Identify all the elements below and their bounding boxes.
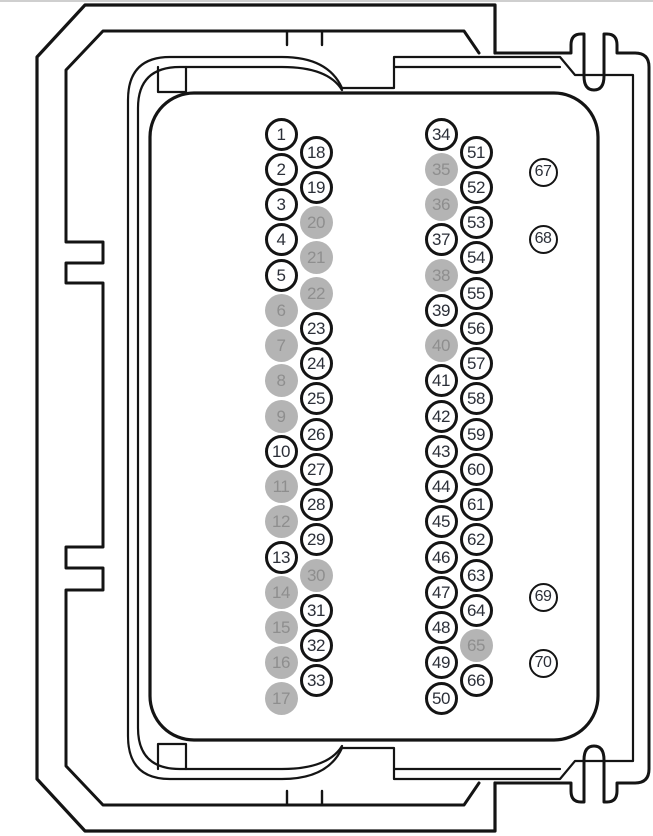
pin-number-label: 35 — [432, 161, 450, 178]
pin-number-label: 58 — [467, 390, 485, 407]
pin-number-label: 17 — [272, 690, 290, 707]
pin-number-label: 49 — [432, 654, 450, 671]
pin-number-label: 40 — [432, 337, 450, 354]
pin-number-label: 14 — [272, 584, 290, 601]
pin-70: 70 — [529, 649, 558, 678]
pin-34: 34 — [425, 118, 458, 151]
pin-48: 48 — [425, 611, 458, 644]
pin-66: 66 — [460, 664, 493, 697]
pin-number-label: 32 — [307, 637, 325, 654]
pin-10: 10 — [265, 435, 298, 468]
latch-notches — [158, 67, 186, 769]
pin-number-label: 42 — [432, 408, 450, 425]
pin-number-label: 23 — [307, 320, 325, 337]
connector-housing-outline — [0, 0, 653, 836]
pin-50: 50 — [425, 682, 458, 715]
pin-37: 37 — [425, 223, 458, 256]
pin-number-label: 10 — [272, 443, 290, 460]
pin-number-label: 46 — [432, 549, 450, 566]
pin-number-label: 47 — [432, 584, 450, 601]
pin-number-label: 48 — [432, 619, 450, 636]
pin-number-label: 26 — [307, 426, 325, 443]
pin-51: 51 — [460, 136, 493, 169]
pin-3: 3 — [265, 188, 298, 221]
pin-number-label: 4 — [277, 231, 286, 248]
pin-number-label: 20 — [307, 214, 325, 231]
pin-number-label: 57 — [467, 355, 485, 372]
pin-58: 58 — [460, 382, 493, 415]
pin-18: 18 — [300, 136, 333, 169]
pin-56: 56 — [460, 312, 493, 345]
pin-4: 4 — [265, 223, 298, 256]
pin-19: 19 — [300, 171, 333, 204]
pin-number-label: 27 — [307, 461, 325, 478]
pin-number-label: 52 — [467, 179, 485, 196]
pin-number-label: 44 — [432, 478, 450, 495]
pin-24: 24 — [300, 347, 333, 380]
pin-number-label: 21 — [307, 249, 325, 266]
pin-16: 16 — [265, 646, 298, 679]
pin-1: 1 — [265, 118, 298, 151]
pin-2: 2 — [265, 153, 298, 186]
pin-number-label: 69 — [535, 589, 552, 605]
pin-number-label: 65 — [467, 637, 485, 654]
pin-62: 62 — [460, 523, 493, 556]
pin-44: 44 — [425, 470, 458, 503]
pin-number-label: 62 — [467, 531, 485, 548]
pin-30: 30 — [300, 559, 333, 592]
pin-number-label: 8 — [277, 372, 286, 389]
pin-5: 5 — [265, 259, 298, 292]
pin-number-label: 31 — [307, 602, 325, 619]
pin-52: 52 — [460, 171, 493, 204]
pin-35: 35 — [425, 153, 458, 186]
pin-29: 29 — [300, 523, 333, 556]
pin-number-label: 28 — [307, 496, 325, 513]
pin-number-label: 55 — [467, 285, 485, 302]
pin-6: 6 — [265, 294, 298, 327]
pin-number-label: 30 — [307, 567, 325, 584]
pin-number-label: 3 — [277, 196, 286, 213]
pin-number-label: 11 — [273, 478, 290, 495]
pin-number-label: 12 — [272, 513, 290, 530]
pin-43: 43 — [425, 435, 458, 468]
pin-17: 17 — [265, 682, 298, 715]
pin-number-label: 63 — [467, 567, 485, 584]
pin-number-label: 9 — [277, 408, 286, 425]
pin-40: 40 — [425, 329, 458, 362]
pin-59: 59 — [460, 418, 493, 451]
pin-25: 25 — [300, 382, 333, 415]
pin-number-label: 60 — [467, 461, 485, 478]
pin-26: 26 — [300, 418, 333, 451]
pin-21: 21 — [300, 241, 333, 274]
outer-right-keyholes — [495, 34, 649, 802]
pin-number-label: 56 — [467, 320, 485, 337]
pin-number-label: 50 — [432, 690, 450, 707]
seal-groove-outer — [128, 57, 633, 779]
pin-number-label: 45 — [432, 513, 450, 530]
pin-number-label: 67 — [535, 164, 552, 180]
pin-20: 20 — [300, 206, 333, 239]
pin-number-label: 13 — [272, 549, 290, 566]
pin-38: 38 — [425, 259, 458, 292]
connector-diagram: 1234567891011121314151617181920212223242… — [0, 0, 653, 836]
pin-number-label: 5 — [277, 267, 286, 284]
pin-42: 42 — [425, 400, 458, 433]
pin-49: 49 — [425, 646, 458, 679]
pin-number-label: 66 — [467, 672, 485, 689]
pin-28: 28 — [300, 488, 333, 521]
pin-39: 39 — [425, 294, 458, 327]
pin-number-label: 51 — [467, 144, 485, 161]
pin-number-label: 16 — [272, 654, 290, 671]
pin-22: 22 — [300, 277, 333, 310]
pin-61: 61 — [460, 488, 493, 521]
pin-number-label: 43 — [432, 443, 450, 460]
pin-13: 13 — [265, 541, 298, 574]
pin-number-label: 41 — [432, 372, 450, 389]
pin-33: 33 — [300, 664, 333, 697]
pin-number-label: 38 — [432, 267, 450, 284]
pin-41: 41 — [425, 364, 458, 397]
pin-number-label: 59 — [467, 426, 485, 443]
pin-number-label: 64 — [467, 602, 485, 619]
pin-32: 32 — [300, 629, 333, 662]
pin-cavity — [150, 93, 598, 740]
pin-9: 9 — [265, 400, 298, 433]
pin-67: 67 — [529, 158, 558, 187]
pin-55: 55 — [460, 277, 493, 310]
pin-53: 53 — [460, 206, 493, 239]
pin-number-label: 54 — [467, 249, 485, 266]
pin-12: 12 — [265, 505, 298, 538]
pin-number-label: 39 — [432, 302, 450, 319]
pin-number-label: 29 — [307, 531, 325, 548]
pin-65: 65 — [460, 629, 493, 662]
pin-46: 46 — [425, 541, 458, 574]
pin-number-label: 2 — [277, 161, 286, 178]
pin-68: 68 — [529, 225, 558, 254]
pin-number-label: 15 — [272, 619, 290, 636]
pin-60: 60 — [460, 453, 493, 486]
pin-number-label: 24 — [307, 355, 325, 372]
pin-11: 11 — [265, 470, 298, 503]
pin-number-label: 36 — [432, 196, 450, 213]
pin-23: 23 — [300, 312, 333, 345]
pin-69: 69 — [529, 583, 558, 612]
pin-14: 14 — [265, 576, 298, 609]
pin-7: 7 — [265, 329, 298, 362]
pin-number-label: 53 — [467, 214, 485, 231]
pin-number-label: 68 — [535, 231, 552, 247]
pin-number-label: 70 — [535, 655, 552, 671]
pin-number-label: 25 — [307, 390, 325, 407]
pin-31: 31 — [300, 594, 333, 627]
pin-number-label: 33 — [307, 672, 325, 689]
pin-number-label: 19 — [307, 179, 325, 196]
pin-36: 36 — [425, 188, 458, 221]
pin-8: 8 — [265, 364, 298, 397]
pin-63: 63 — [460, 559, 493, 592]
pin-54: 54 — [460, 241, 493, 274]
pin-number-label: 6 — [277, 302, 286, 319]
pin-number-label: 61 — [467, 496, 485, 513]
pin-47: 47 — [425, 576, 458, 609]
pin-27: 27 — [300, 453, 333, 486]
pin-number-label: 1 — [277, 126, 286, 143]
pin-64: 64 — [460, 594, 493, 627]
pin-number-label: 18 — [307, 144, 325, 161]
pin-number-label: 34 — [432, 126, 450, 143]
pin-number-label: 37 — [432, 231, 450, 248]
pin-number-label: 7 — [277, 337, 286, 354]
pin-57: 57 — [460, 347, 493, 380]
pin-15: 15 — [265, 611, 298, 644]
pin-45: 45 — [425, 505, 458, 538]
pin-number-label: 22 — [307, 285, 325, 302]
seal-groove-inner — [138, 67, 560, 769]
